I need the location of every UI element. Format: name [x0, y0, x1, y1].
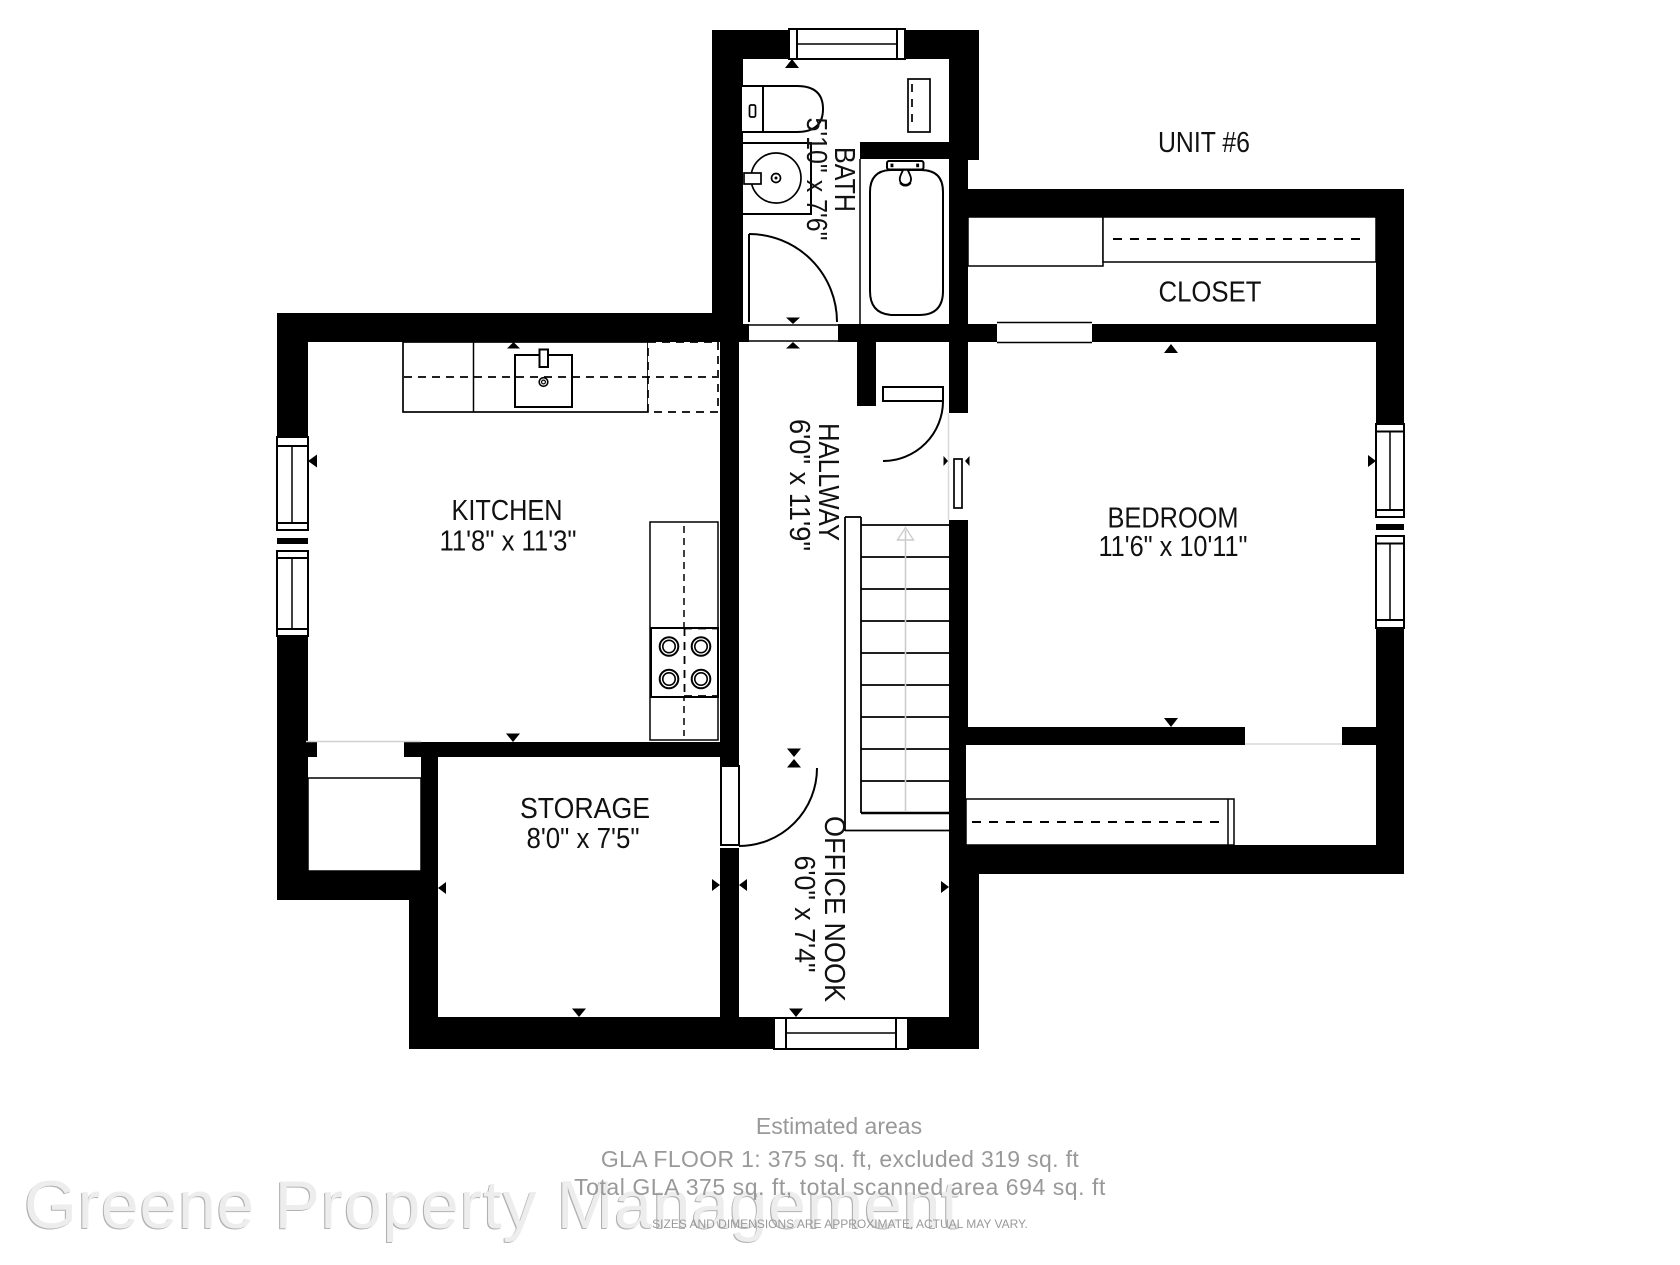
svg-text:CLOSET: CLOSET: [1159, 277, 1262, 309]
svg-text:OFFICE NOOK: OFFICE NOOK: [818, 816, 850, 1003]
svg-text:GLA FLOOR 1: 375 sq. ft, exclu: GLA FLOOR 1: 375 sq. ft, excluded 319 sq…: [601, 1146, 1079, 1172]
svg-text:Total GLA 375 sq. ft, total sc: Total GLA 375 sq. ft, total scanned area…: [574, 1174, 1106, 1200]
svg-text:SIZES AND DIMENSIONS ARE APPRO: SIZES AND DIMENSIONS ARE APPROXIMATE, AC…: [652, 1217, 1028, 1231]
svg-text:11'8" x 11'3": 11'8" x 11'3": [440, 526, 577, 558]
svg-text:STORAGE: STORAGE: [520, 793, 650, 825]
svg-text:BEDROOM: BEDROOM: [1108, 503, 1239, 535]
svg-text:11'6" x 10'11": 11'6" x 10'11": [1099, 531, 1248, 563]
svg-text:5'10" x 7'6": 5'10" x 7'6": [800, 118, 832, 241]
svg-text:6'0" x 11'9": 6'0" x 11'9": [783, 419, 815, 551]
svg-text:UNIT #6: UNIT #6: [1158, 127, 1250, 159]
svg-text:Estimated areas: Estimated areas: [756, 1113, 922, 1139]
svg-text:HALLWAY: HALLWAY: [812, 423, 844, 541]
svg-text:6'0" x 7'4": 6'0" x 7'4": [788, 856, 820, 973]
svg-text:KITCHEN: KITCHEN: [452, 495, 563, 527]
svg-text:8'0" x 7'5": 8'0" x 7'5": [527, 823, 640, 855]
